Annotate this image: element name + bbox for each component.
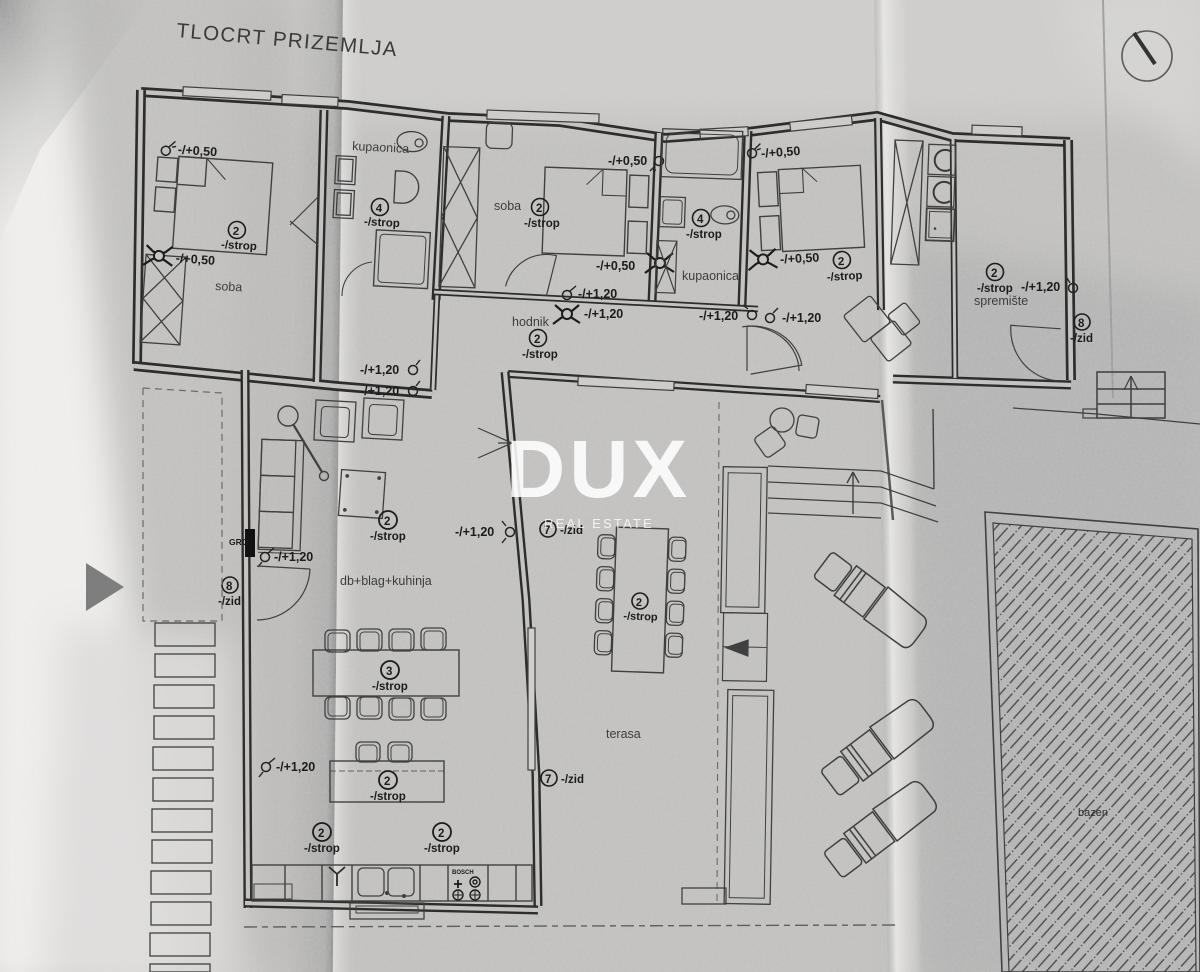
svg-text:-/+0,50: -/+0,50 — [780, 250, 820, 266]
svg-text:-/+0,50: -/+0,50 — [177, 143, 217, 160]
svg-text:2: 2 — [536, 203, 542, 215]
svg-text:4: 4 — [375, 203, 383, 215]
svg-text:-/+0,50: -/+0,50 — [761, 144, 801, 161]
svg-text:2: 2 — [838, 256, 845, 268]
svg-text:-/strop: -/strop — [826, 270, 862, 284]
svg-text:2: 2 — [232, 226, 239, 238]
svg-text:soba: soba — [215, 279, 243, 294]
svg-text:2: 2 — [534, 334, 540, 346]
svg-text:-/strop: -/strop — [372, 681, 408, 693]
svg-text:2: 2 — [318, 828, 324, 840]
svg-text:-/strop: -/strop — [686, 229, 722, 241]
svg-text:-/strop: -/strop — [364, 216, 400, 230]
svg-text:-/zid: -/zid — [1070, 333, 1093, 345]
svg-text:terasa: terasa — [606, 727, 641, 741]
svg-text:8: 8 — [226, 581, 233, 593]
svg-text:-/strop: -/strop — [977, 283, 1013, 295]
svg-text:4: 4 — [697, 214, 704, 226]
svg-text:GRO: GRO — [229, 537, 249, 547]
svg-text:-/+1,20: -/+1,20 — [276, 760, 315, 774]
svg-text:-/zid: -/zid — [561, 774, 584, 786]
svg-text:2: 2 — [438, 828, 444, 840]
svg-text:soba: soba — [494, 199, 521, 213]
svg-text:hodnik: hodnik — [512, 315, 550, 329]
svg-text:-/strop: -/strop — [370, 791, 406, 803]
svg-text:8: 8 — [1078, 318, 1085, 330]
svg-text:7: 7 — [545, 774, 551, 786]
svg-text:-/+1,20: -/+1,20 — [584, 307, 623, 321]
svg-text:DUX: DUX — [506, 424, 691, 515]
svg-text:-/+1,20: -/+1,20 — [455, 525, 494, 539]
svg-text:bazen: bazen — [1078, 807, 1108, 819]
svg-text:-/+1,20: -/+1,20 — [699, 309, 738, 323]
svg-text:-/strop: -/strop — [522, 349, 558, 361]
svg-text:2: 2 — [991, 268, 997, 280]
svg-text:-/+0,50: -/+0,50 — [596, 259, 635, 273]
svg-text:-/+0,50: -/+0,50 — [608, 154, 647, 168]
svg-text:kupaonica: kupaonica — [682, 269, 739, 283]
svg-text:db+blag+kuhinja: db+blag+kuhinja — [340, 574, 432, 588]
svg-text:REAL ESTATE: REAL ESTATE — [544, 516, 654, 531]
svg-text:-/strop: -/strop — [424, 843, 460, 855]
svg-text:BOSCH: BOSCH — [452, 870, 474, 876]
svg-text:-/strop: -/strop — [221, 239, 257, 253]
svg-text:-/+1,20: -/+1,20 — [578, 287, 617, 301]
svg-text:-/strop: -/strop — [524, 218, 560, 230]
svg-text:-/+1,20: -/+1,20 — [274, 550, 313, 564]
svg-text:2: 2 — [636, 597, 643, 609]
svg-text:-/+1,20: -/+1,20 — [1021, 280, 1060, 294]
svg-text:-/strop: -/strop — [304, 843, 340, 855]
svg-text:2: 2 — [384, 516, 390, 528]
svg-text:kupaonica: kupaonica — [352, 139, 410, 156]
svg-text:-/strop: -/strop — [370, 531, 406, 543]
svg-text:2: 2 — [384, 776, 390, 788]
svg-text:3: 3 — [386, 666, 392, 678]
svg-text:-/+1,20: -/+1,20 — [360, 363, 399, 377]
svg-text:spremište: spremište — [974, 294, 1028, 308]
svg-text:-/+1,20: -/+1,20 — [360, 384, 399, 398]
svg-text:-/strop: -/strop — [623, 610, 658, 623]
svg-text:-/+1,20: -/+1,20 — [782, 311, 821, 325]
svg-text:-/+0,50: -/+0,50 — [175, 251, 215, 268]
